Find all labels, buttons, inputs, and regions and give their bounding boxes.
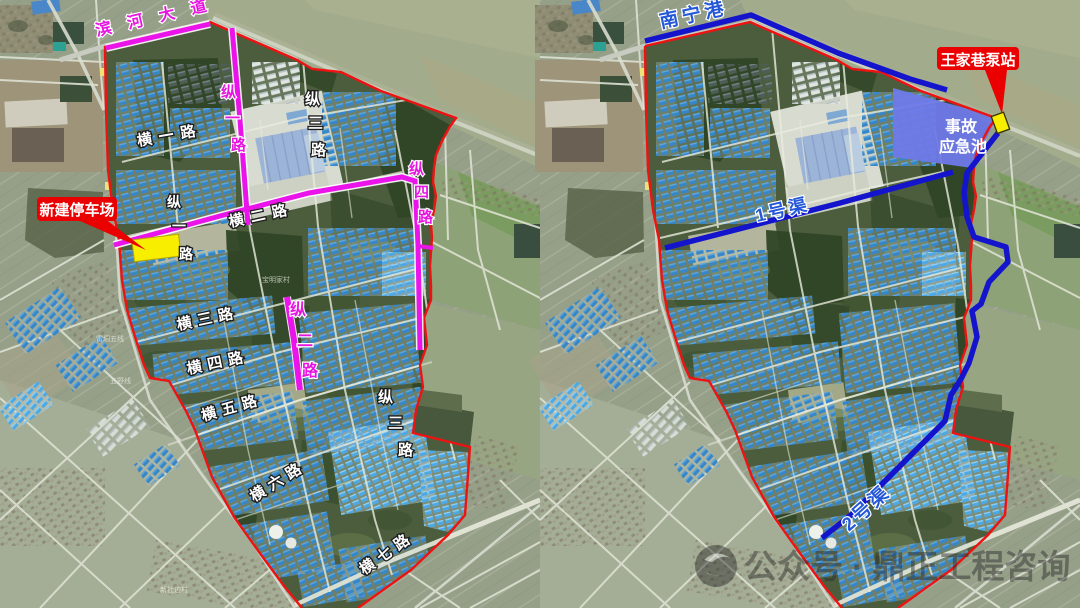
svg-text:路: 路 <box>398 441 414 459</box>
svg-text:五野线: 五野线 <box>110 376 131 385</box>
svg-text:路: 路 <box>302 361 319 380</box>
svg-text:路: 路 <box>179 246 194 262</box>
svg-text:应急池: 应急池 <box>939 137 987 156</box>
svg-text:新社边村: 新社边村 <box>160 585 188 594</box>
svg-text:三: 三 <box>388 415 403 432</box>
svg-text:三: 三 <box>308 115 323 132</box>
svg-text:纵: 纵 <box>221 83 236 101</box>
svg-text:一: 一 <box>172 218 186 234</box>
svg-text:纵: 纵 <box>409 160 424 178</box>
svg-text:纵: 纵 <box>167 194 181 210</box>
svg-text:四: 四 <box>414 184 429 201</box>
svg-text:二: 二 <box>297 333 313 350</box>
svg-text:一: 一 <box>225 110 240 127</box>
svg-text:纵: 纵 <box>305 90 320 108</box>
svg-text:宝明家村: 宝明家村 <box>262 275 290 284</box>
svg-text:雷垌五线: 雷垌五线 <box>96 334 124 343</box>
svg-text:路: 路 <box>231 136 247 154</box>
svg-text:公众号 · 鼎正工程咨询: 公众号 · 鼎正工程咨询 <box>744 548 1070 585</box>
svg-text:路: 路 <box>418 208 434 226</box>
svg-text:新建停车场: 新建停车场 <box>39 201 114 219</box>
svg-text:路: 路 <box>311 141 327 159</box>
svg-text:事故: 事故 <box>945 117 978 136</box>
svg-text:纵: 纵 <box>290 300 306 319</box>
svg-text:纵: 纵 <box>378 388 393 406</box>
svg-text:王家巷泵站: 王家巷泵站 <box>940 51 1015 69</box>
